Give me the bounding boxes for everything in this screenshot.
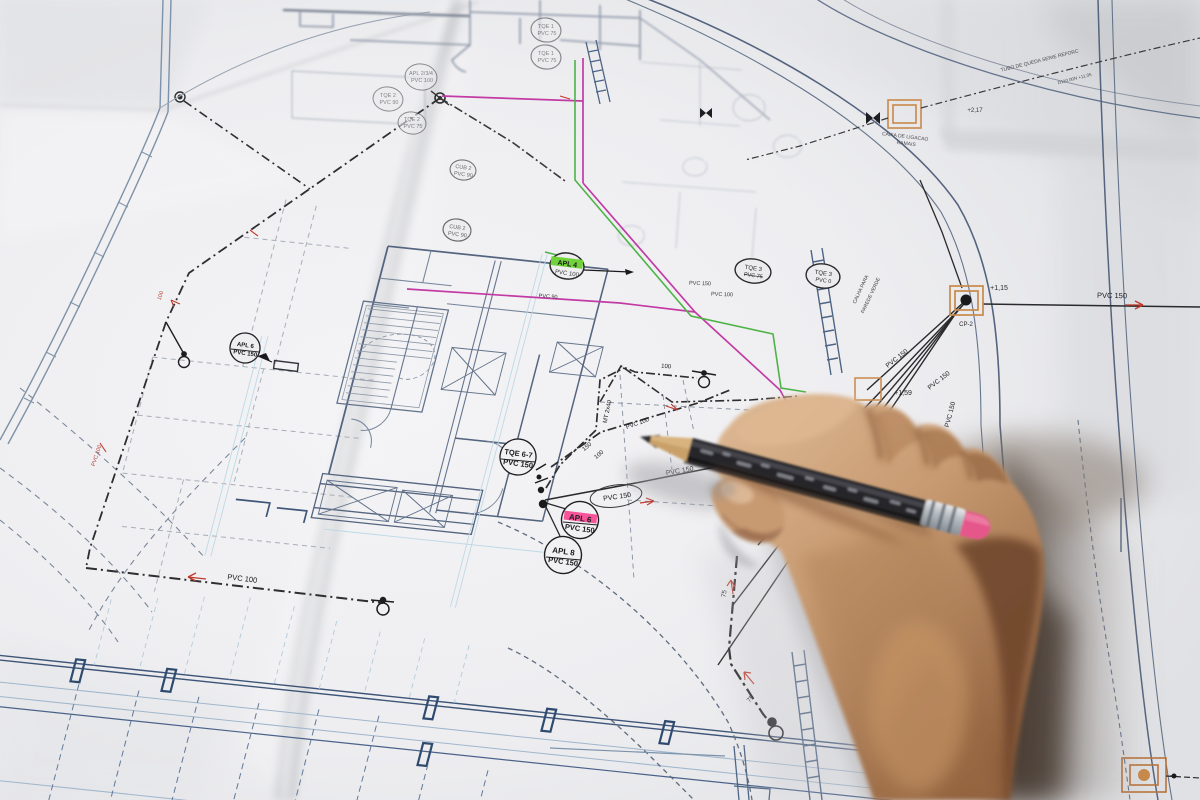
svg-text:TQE 1: TQE 1 [538, 24, 554, 30]
svg-text:PVC 90: PVC 90 [380, 100, 399, 106]
svg-text:PVC 100: PVC 100 [711, 292, 733, 299]
svg-text:PVC 75: PVC 75 [404, 124, 423, 130]
svg-text:PVC 150: PVC 150 [1097, 291, 1127, 301]
svg-text:+1,59: +1,59 [894, 390, 912, 397]
svg-text:CP-2: CP-2 [959, 322, 973, 328]
svg-text:TQE 1: TQE 1 [538, 51, 554, 57]
svg-text:100: 100 [661, 364, 672, 371]
svg-text:+1,15: +1,15 [990, 285, 1008, 292]
svg-text:PVC 75: PVC 75 [538, 58, 557, 64]
svg-text:+2,17: +2,17 [967, 108, 983, 114]
svg-text:PVC 150: PVC 150 [689, 281, 711, 288]
svg-text:PVC 75: PVC 75 [538, 31, 557, 37]
svg-text:TQE 2: TQE 2 [380, 93, 396, 99]
svg-text:PVC 100: PVC 100 [411, 78, 433, 84]
svg-text:APL 2/3/4: APL 2/3/4 [409, 71, 433, 77]
svg-text:TQE 2: TQE 2 [404, 117, 420, 123]
